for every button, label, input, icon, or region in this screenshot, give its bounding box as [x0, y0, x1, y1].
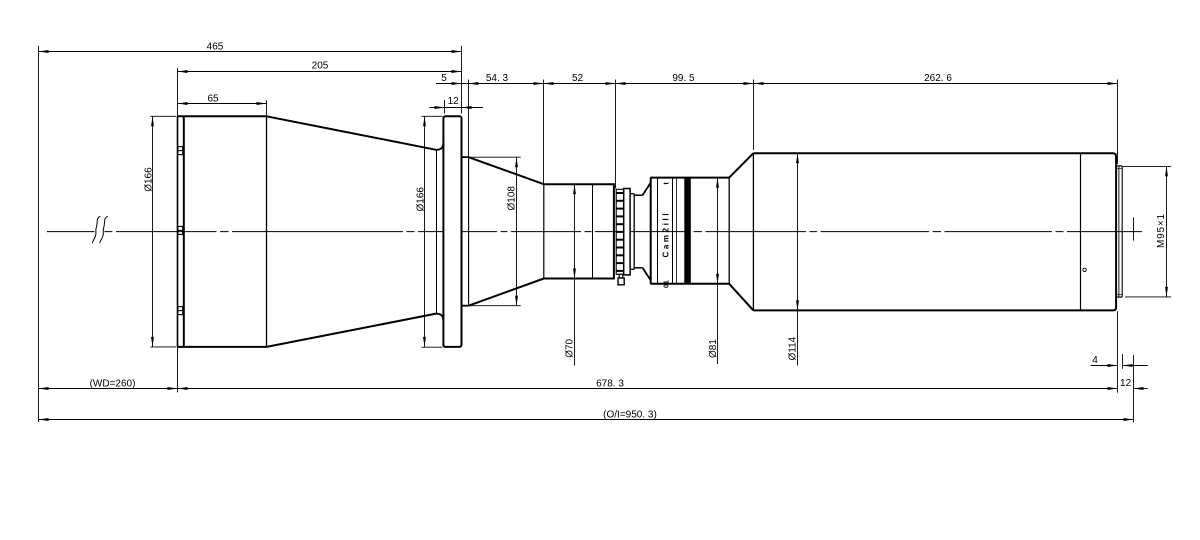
svg-text:465: 465 — [207, 41, 224, 52]
svg-text:Ø70: Ø70 — [565, 338, 576, 357]
svg-text:678. 3: 678. 3 — [596, 379, 624, 390]
svg-text:(O/I=950. 3): (O/I=950. 3) — [603, 410, 657, 421]
svg-text:(WD=260): (WD=260) — [90, 378, 136, 389]
svg-text:99. 5: 99. 5 — [672, 73, 695, 84]
svg-text:262. 6: 262. 6 — [924, 73, 952, 84]
svg-text:Ø108: Ø108 — [507, 186, 518, 211]
svg-text:Cam2ill: Cam2ill — [661, 211, 670, 258]
svg-text:52: 52 — [572, 73, 584, 84]
svg-text:205: 205 — [312, 61, 329, 72]
svg-text:65: 65 — [207, 93, 219, 104]
svg-text:Ø114: Ø114 — [788, 336, 799, 360]
svg-text:Ø81: Ø81 — [708, 339, 719, 358]
svg-text:M95×1: M95×1 — [1156, 213, 1167, 248]
svg-text:Ø166: Ø166 — [415, 187, 426, 212]
svg-text:12: 12 — [448, 96, 460, 107]
svg-text:12: 12 — [1120, 378, 1132, 389]
svg-text:Ø166: Ø166 — [143, 167, 154, 192]
svg-text:54. 3: 54. 3 — [486, 73, 509, 84]
svg-text:01: 01 — [663, 280, 670, 288]
svg-text:5: 5 — [441, 73, 447, 84]
svg-text:4: 4 — [1092, 355, 1098, 366]
